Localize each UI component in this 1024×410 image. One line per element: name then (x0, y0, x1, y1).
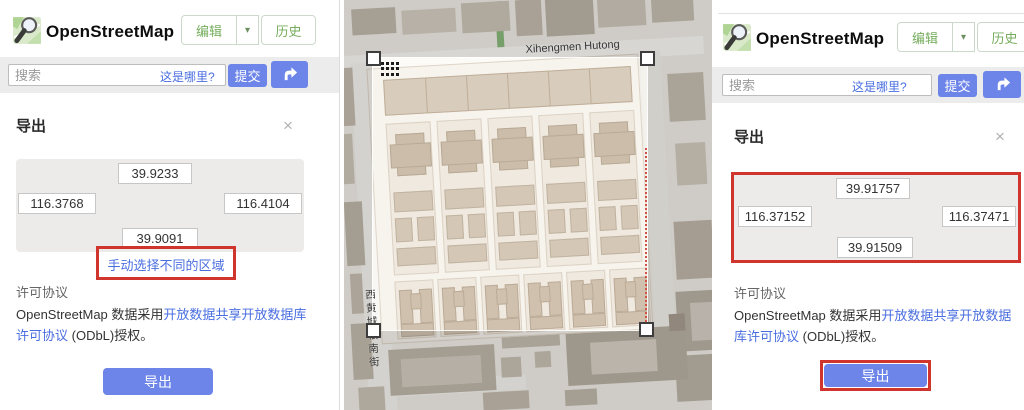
bbox-north-input[interactable] (836, 178, 910, 199)
bbox-east-input[interactable] (224, 193, 302, 214)
map-building (534, 351, 551, 368)
where-is-this-link[interactable]: 这是哪里? (160, 68, 215, 85)
map-building (597, 0, 646, 28)
search-bar: 这是哪里? 提交 (712, 67, 1024, 103)
license-heading: 许可协议 (16, 282, 68, 301)
map-building (675, 142, 707, 186)
map-building (515, 0, 543, 36)
edit-button[interactable]: 编辑 (897, 22, 953, 52)
map-building (667, 72, 706, 122)
directions-button[interactable] (271, 61, 308, 88)
caret-down-icon[interactable]: ▾ (952, 22, 975, 52)
search-submit-button[interactable]: 提交 (938, 74, 977, 97)
osm-logo-icon (722, 22, 752, 57)
license-text: OpenStreetMap 数据采用 (16, 307, 163, 322)
directions-button[interactable] (983, 71, 1021, 98)
license-text: OpenStreetMap 数据采用 (734, 308, 881, 323)
map-building (690, 302, 712, 341)
license-text-tail: (ODbL)授权。 (68, 328, 153, 343)
history-button[interactable]: 历史 (977, 22, 1024, 52)
map-building (501, 357, 522, 378)
highlight-box-coordinates (731, 172, 1021, 263)
directions-arrow-icon (280, 64, 299, 86)
search-bar: 这是哪里? 提交 (0, 57, 339, 93)
map-building (401, 355, 482, 387)
map-building (565, 388, 598, 406)
map-building (358, 386, 386, 410)
map-building (344, 134, 355, 185)
history-button[interactable]: 历史 (261, 15, 316, 45)
bbox-coordinates (734, 175, 1018, 260)
map-building (590, 339, 658, 375)
directions-arrow-icon (993, 74, 1012, 96)
bbox-west-input[interactable] (18, 193, 96, 214)
bbox-south-input[interactable] (837, 237, 913, 258)
nav-button-group: 编辑 ▾ 历史 (181, 15, 316, 45)
map-building (669, 313, 686, 331)
export-button[interactable]: 导出 (824, 364, 927, 387)
osm-logo-icon (12, 15, 42, 50)
drag-handle-dots-icon[interactable] (381, 62, 400, 76)
map-canvas[interactable]: Xihengmen Hutong 西黄城根南街 (344, 0, 712, 410)
screenshot-root: OpenStreetMap 编辑 ▾ 历史 这是哪里? 提交 导出 × (0, 0, 1024, 410)
export-panel-title: 导出 (16, 115, 46, 136)
map-building (483, 390, 530, 410)
admin-boundary-line (645, 148, 647, 330)
bbox-north-input[interactable] (118, 163, 192, 184)
map-building (350, 273, 364, 314)
map-building (344, 201, 365, 266)
license-text-tail: (ODbL)授权。 (799, 329, 884, 344)
export-button[interactable]: 导出 (103, 368, 213, 395)
edit-button[interactable]: 编辑 (181, 15, 237, 45)
where-is-this-link[interactable]: 这是哪里? (852, 78, 907, 95)
right-osm-panel: OpenStreetMap 编辑 ▾ 历史 这是哪里? 提交 导出 × (712, 0, 1024, 410)
brand-title: OpenStreetMap (46, 22, 174, 42)
manual-select-area-link[interactable]: 手动选择不同的区域 (99, 255, 233, 274)
close-icon[interactable]: × (283, 117, 293, 134)
panel-top-border (718, 13, 1024, 14)
brand-title: OpenStreetMap (756, 29, 884, 49)
bbox-east-input[interactable] (942, 206, 1016, 227)
map-building (651, 0, 695, 23)
bbox-coordinates (16, 159, 304, 252)
license-heading: 许可协议 (734, 283, 786, 302)
map-building (545, 0, 595, 37)
caret-down-icon[interactable]: ▾ (236, 15, 259, 45)
map-building (351, 7, 396, 35)
nav-button-group: 编辑 ▾ 历史 (897, 22, 1024, 52)
map-building (401, 8, 456, 35)
highlight-box-export-button: 导出 (820, 360, 931, 391)
selection-handle-ne[interactable] (640, 51, 655, 66)
export-panel-title: 导出 (734, 126, 764, 147)
close-icon[interactable]: × (995, 128, 1005, 145)
license-paragraph: OpenStreetMap 数据采用开放数据共享开放数据库许可协议 (ODbL)… (16, 304, 312, 346)
export-selection-area[interactable] (372, 57, 648, 331)
selection-handle-sw[interactable] (366, 323, 381, 338)
license-paragraph: OpenStreetMap 数据采用开放数据共享开放数据库许可协议 (ODbL)… (734, 305, 1020, 347)
map-building (461, 1, 511, 34)
left-osm-panel: OpenStreetMap 编辑 ▾ 历史 这是哪里? 提交 导出 × (0, 0, 340, 410)
selection-handle-se[interactable] (639, 322, 654, 337)
map-building (673, 220, 712, 280)
bbox-west-input[interactable] (738, 206, 812, 227)
search-submit-button[interactable]: 提交 (228, 64, 267, 87)
selection-handle-nw[interactable] (366, 51, 381, 66)
highlight-box-manual-select: 手动选择不同的区域 (96, 246, 236, 280)
